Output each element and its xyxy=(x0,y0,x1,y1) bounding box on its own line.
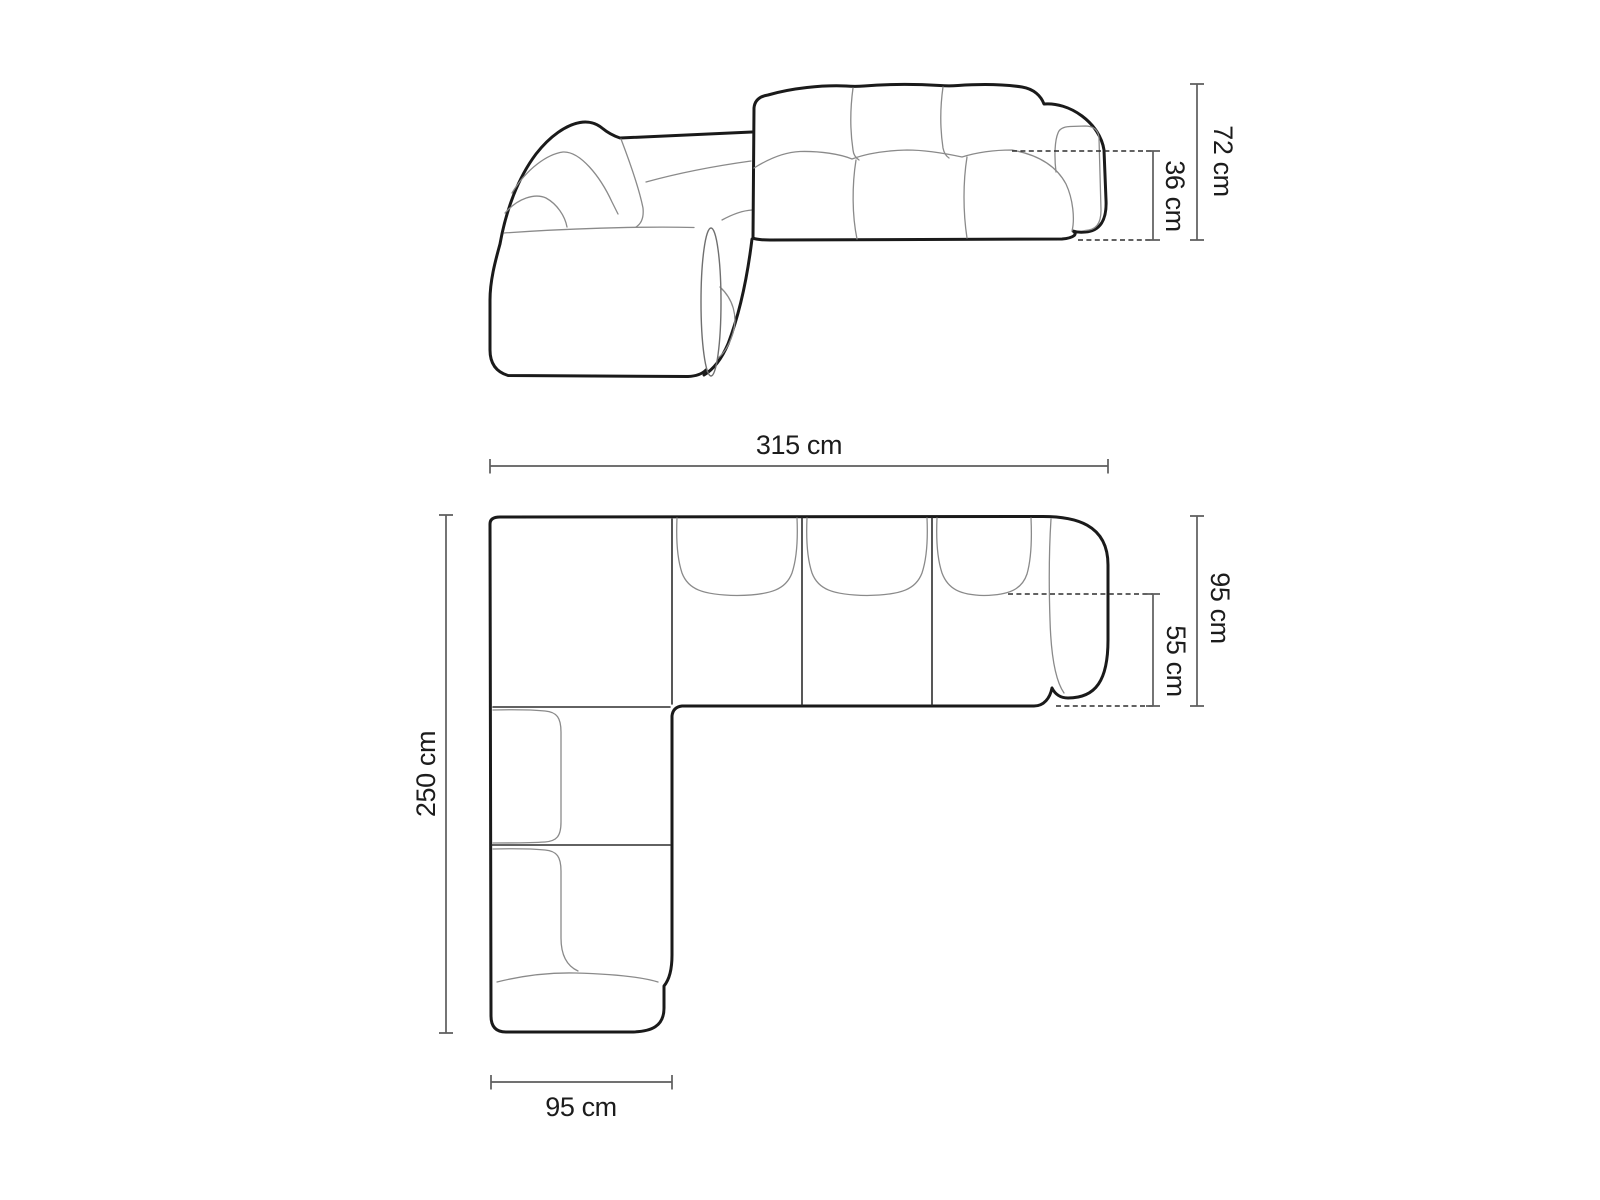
total-height-line xyxy=(1190,84,1204,240)
sofa-plan-drawing xyxy=(490,516,1108,1032)
top-plan-view: 315 cm 250 cm 95 cm 55 cm 95 cm xyxy=(411,430,1235,1122)
back-cushion-separator-1 xyxy=(851,88,859,160)
chaise-back-crease-c xyxy=(621,139,643,227)
plan-bottom-armrest-inner-line xyxy=(497,973,658,982)
chaise-width-line xyxy=(491,1075,672,1090)
seat-cushion-separator-2 xyxy=(964,157,967,238)
plan-chaise-cushion-2 xyxy=(493,849,578,971)
plan-back-cushion-1 xyxy=(677,518,798,596)
sofa-body-outline xyxy=(753,84,1106,240)
chaise-back-crease-a xyxy=(512,152,618,214)
chaise-back-crease-b xyxy=(505,196,567,227)
diagram-canvas: 72 cm 36 cm 315 cm 250 cm xyxy=(0,0,1600,1200)
dim-total-width: 315 cm xyxy=(490,430,1108,474)
plan-back-cushion-3 xyxy=(937,518,1032,596)
side-depth-label: 95 cm xyxy=(1205,572,1235,644)
total-width-line xyxy=(490,459,1108,474)
plan-outline xyxy=(490,516,1108,1032)
chaise-armrest-cap-ellipse xyxy=(701,228,721,376)
total-depth-line xyxy=(439,515,453,1033)
seat-back-boundary-line xyxy=(754,150,1073,231)
back-cushion-separator-2 xyxy=(941,87,949,158)
dim-seat-depth: 55 cm xyxy=(1008,594,1191,706)
total-height-label: 72 cm xyxy=(1208,125,1238,197)
side-depth-line xyxy=(1190,516,1204,706)
plan-module-separators xyxy=(492,518,932,845)
chaise-seat-front-outline xyxy=(704,239,752,375)
dim-total-height: 72 cm xyxy=(1190,84,1238,240)
chaise-outline xyxy=(490,122,752,376)
plan-chaise-cushion-1 xyxy=(493,710,561,843)
total-width-label: 315 cm xyxy=(756,430,842,460)
dim-chaise-width: 95 cm xyxy=(491,1075,672,1122)
seat-height-label: 36 cm xyxy=(1160,160,1190,232)
side-elevation-view: 72 cm 36 cm xyxy=(490,84,1238,377)
total-depth-label: 250 cm xyxy=(411,731,441,817)
chaise-width-label: 95 cm xyxy=(545,1092,617,1122)
dim-side-depth: 95 cm xyxy=(1190,516,1235,706)
sofa-chaise-side-drawing xyxy=(490,122,752,376)
chaise-perspective-line-lower xyxy=(722,210,752,220)
seat-height-line xyxy=(1146,151,1160,240)
sofa-body-side-drawing xyxy=(753,84,1106,240)
plan-back-cushion-2 xyxy=(807,518,928,596)
seat-depth-line xyxy=(1146,594,1160,706)
seat-depth-label: 55 cm xyxy=(1161,625,1191,697)
seat-cushion-separator-1 xyxy=(853,160,857,239)
dim-total-depth: 250 cm xyxy=(411,515,453,1033)
chaise-armrest-top-line xyxy=(504,227,694,233)
sofa-dimension-diagram: 72 cm 36 cm 315 cm 250 cm xyxy=(0,0,1600,1200)
plan-right-armrest-inner-line xyxy=(1049,519,1064,693)
chaise-perspective-line-upper xyxy=(646,161,751,182)
